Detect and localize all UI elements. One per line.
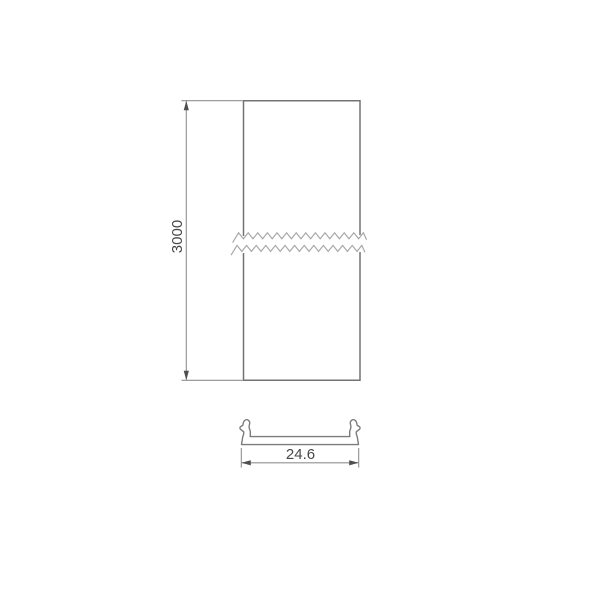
down-arrowhead-icon <box>184 371 189 381</box>
cross-section-outline <box>240 420 360 445</box>
break-line-lower <box>231 245 365 255</box>
side-view-lower-body <box>244 252 361 380</box>
length-dimension-label: 3000 <box>169 220 186 253</box>
break-line-upper <box>233 233 367 243</box>
right-arrowhead-icon <box>349 460 359 465</box>
up-arrowhead-icon <box>184 101 189 111</box>
cross-section-view <box>240 420 360 445</box>
width-dimension-label: 24.6 <box>286 446 315 463</box>
side-view-upper-body <box>244 101 361 236</box>
width-dimension: 24.6 <box>241 446 358 468</box>
technical-drawing: 3000 24.6 <box>0 0 600 600</box>
break-line <box>231 233 367 255</box>
profile-side-view <box>244 101 361 381</box>
drawing-canvas: 3000 24.6 <box>0 0 600 600</box>
left-arrowhead-icon <box>241 460 251 465</box>
length-dimension: 3000 <box>169 101 242 381</box>
